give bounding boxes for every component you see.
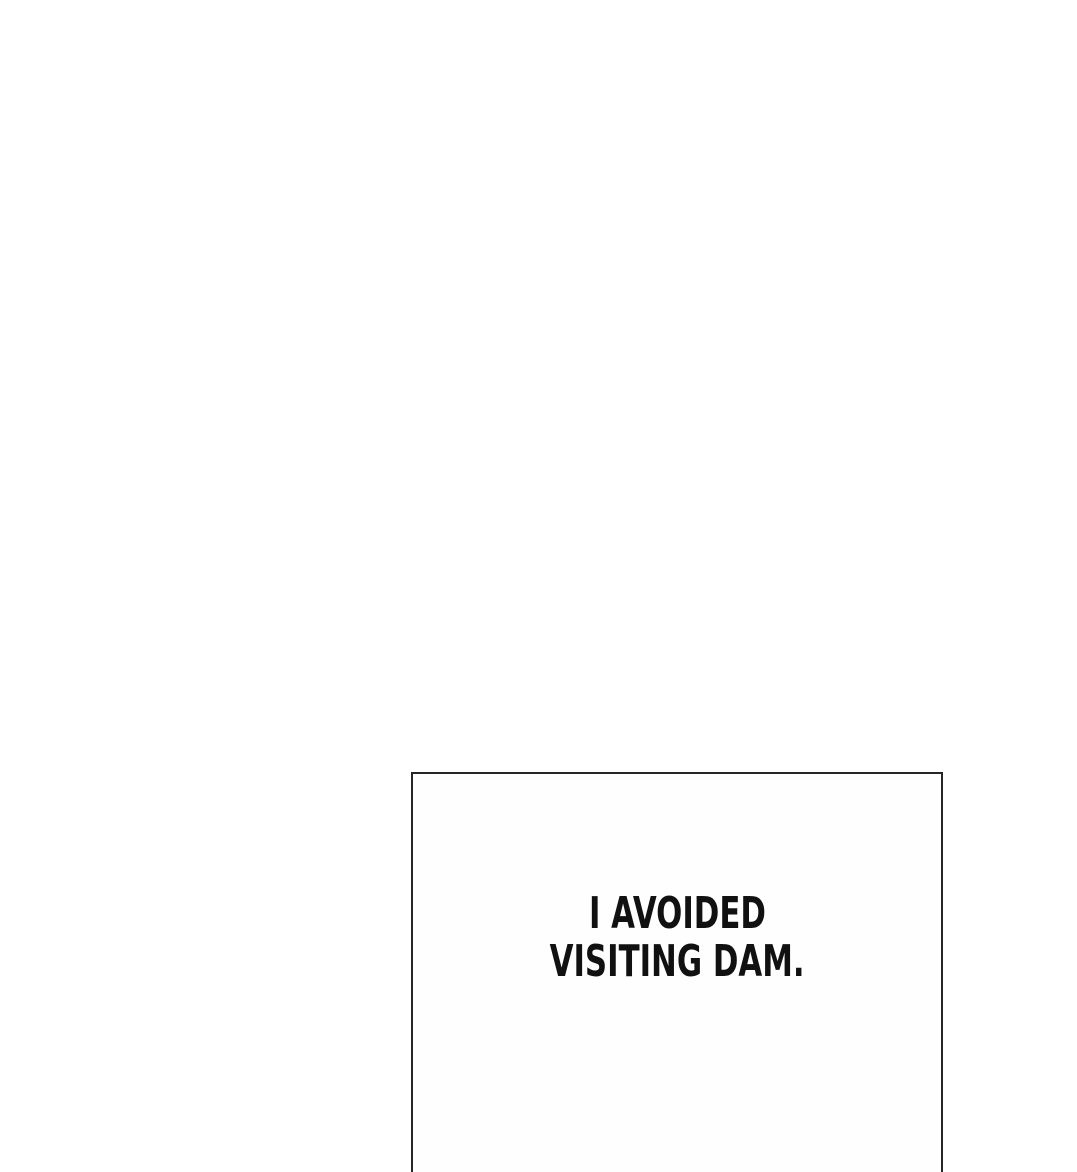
narration-caption: I AVOIDED VISITING DAM. [413,890,941,986]
narration-line-1: I AVOIDED [413,890,941,938]
narration-line-2-text: VISITING DAM. [550,938,805,986]
narration-line-1-text: I AVOIDED [588,890,765,938]
comic-panel: I AVOIDED VISITING DAM. [411,772,943,1172]
narration-line-2: VISITING DAM. [413,938,941,986]
webtoon-page-background: I AVOIDED VISITING DAM. [0,0,1077,1080]
